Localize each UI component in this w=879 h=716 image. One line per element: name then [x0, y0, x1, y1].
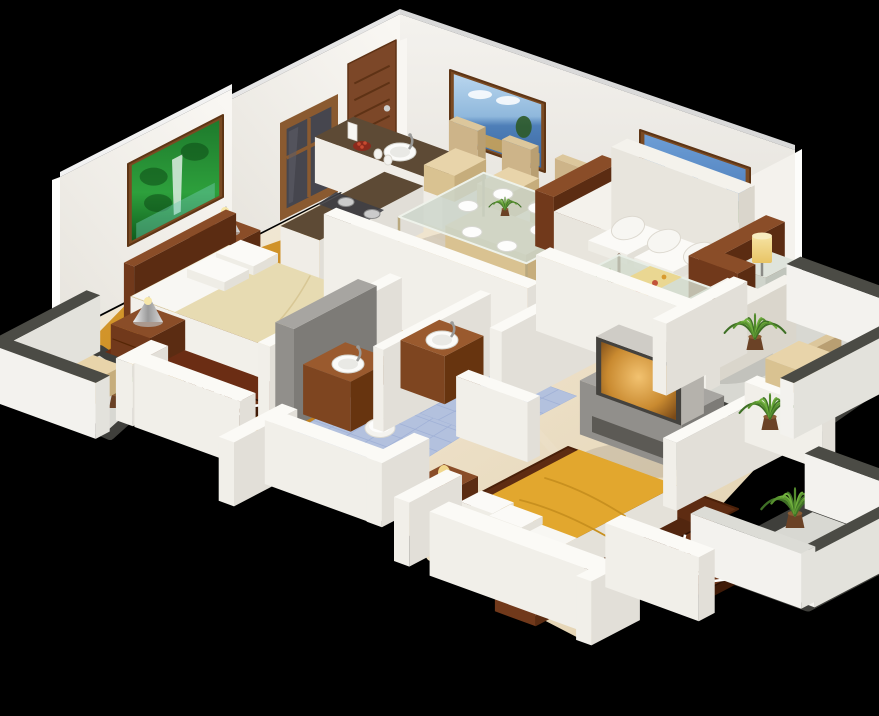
floor-plan-3d-render	[0, 0, 879, 716]
floor-plan-figure	[0, 0, 879, 716]
paper-towel	[348, 122, 357, 141]
